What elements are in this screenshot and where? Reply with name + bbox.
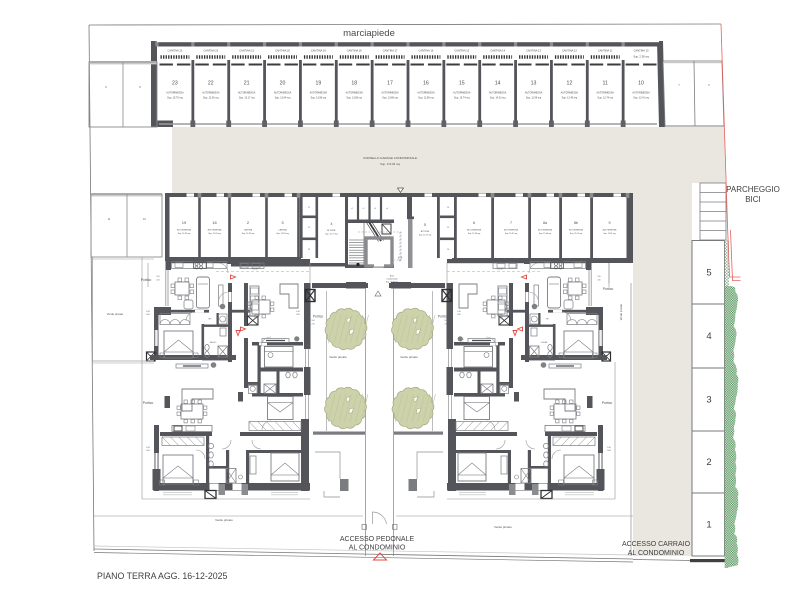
- svg-text:Sup. 15.06 mq: Sup. 15.06 mq: [539, 233, 551, 235]
- svg-text:BAGNO: BAGNO: [210, 341, 217, 344]
- svg-text:Verde privato: Verde privato: [400, 355, 418, 359]
- svg-text:AUTORIMESSA: AUTORIMESSA: [417, 92, 435, 95]
- svg-text:23: 23: [172, 81, 178, 87]
- svg-text:Portico: Portico: [143, 401, 154, 405]
- svg-text:14: 14: [495, 81, 501, 87]
- svg-text:AUTORIMESSA: AUTORIMESSA: [346, 92, 364, 95]
- svg-text:Portico: Portico: [313, 315, 324, 319]
- svg-text:RIP.: RIP.: [208, 319, 212, 321]
- svg-text:AUTORIMESSA: AUTORIMESSA: [525, 92, 543, 95]
- svg-text:Sup. 11.05 mq: Sup. 11.05 mq: [570, 233, 582, 235]
- svg-text:Verde privato: Verde privato: [215, 518, 233, 522]
- svg-text:Portico: Portico: [141, 278, 152, 282]
- svg-text:AUTORIMESSA: AUTORIMESSA: [208, 229, 222, 232]
- svg-text:Sup. 12.40 mq: Sup. 12.40 mq: [562, 97, 578, 100]
- svg-text:AUTORIMESSA: AUTORIMESSA: [504, 229, 518, 232]
- svg-text:CANTINA: CANTINA: [244, 229, 253, 232]
- svg-text:AUTORIMESSA: AUTORIMESSA: [597, 92, 615, 95]
- svg-text:18: 18: [351, 81, 357, 87]
- svg-text:CANTINA 21: CANTINA 21: [239, 49, 254, 53]
- svg-text:4: 4: [331, 222, 333, 226]
- svg-text:Atrio: Atrio: [390, 275, 394, 278]
- svg-text:Sup. 15.77 mq: Sup. 15.77 mq: [419, 235, 431, 237]
- svg-text:Sup. 12.86 mq: Sup. 12.86 mq: [418, 97, 434, 100]
- svg-text:PIANO TERRA AGG. 16-12-2025: PIANO TERRA AGG. 16-12-2025: [97, 571, 227, 581]
- svg-text:AUTORIMESSA: AUTORIMESSA: [569, 229, 583, 232]
- svg-text:CANTINA 10: CANTINA 10: [634, 49, 649, 53]
- svg-text:Sup. 13.86 mq: Sup. 13.86 mq: [311, 97, 327, 100]
- svg-text:2: 2: [706, 457, 711, 468]
- svg-text:19: 19: [182, 220, 187, 225]
- svg-text:c3: c3: [374, 208, 376, 210]
- svg-text:C1: C1: [308, 207, 310, 209]
- svg-text:CORSELLO GARAGE CONDOMINIALE: CORSELLO GARAGE CONDOMINIALE: [363, 156, 417, 160]
- svg-text:CANTINA 14: CANTINA 14: [490, 49, 505, 53]
- svg-text:AUTORIMESSA: AUTORIMESSA: [274, 92, 292, 95]
- svg-text:5: 5: [706, 267, 711, 278]
- svg-text:marciapiede: marciapiede: [343, 28, 395, 39]
- svg-text:CANTINA 23: CANTINA 23: [167, 49, 182, 53]
- svg-text:22: 22: [208, 81, 214, 87]
- svg-text:AL CONDOMINIO: AL CONDOMINIO: [349, 545, 406, 552]
- svg-text:Sup. 14.93 mq: Sup. 14.93 mq: [178, 233, 190, 235]
- svg-text:AUTORIMESSA: AUTORIMESSA: [310, 92, 328, 95]
- svg-text:AUTORIMESSA: AUTORIMESSA: [467, 229, 481, 232]
- svg-text:ACCESSO PEDONALE: ACCESSO PEDONALE: [340, 536, 415, 543]
- svg-text:Sup. 172.63 mq: Sup. 172.63 mq: [380, 162, 400, 166]
- svg-text:BAGNO: BAGNO: [540, 341, 547, 344]
- svg-text:CANTINA: CANTINA: [278, 229, 287, 232]
- svg-text:PARCHEGGIO: PARCHEGGIO: [726, 185, 780, 194]
- svg-text:8b: 8b: [574, 221, 578, 225]
- svg-text:Sup. 12.06 mq: Sup. 12.06 mq: [203, 97, 219, 100]
- svg-text:AUTORIMESSA: AUTORIMESSA: [238, 92, 256, 95]
- svg-text:CANTINA 18: CANTINA 18: [347, 49, 362, 53]
- svg-text:4: 4: [706, 331, 711, 342]
- svg-text:C2: C2: [308, 227, 310, 229]
- svg-text:15: 15: [459, 81, 465, 87]
- svg-text:C4: C4: [447, 207, 449, 209]
- svg-text:AUTORIMESSA: AUTORIMESSA: [603, 229, 617, 232]
- svg-text:Sup. 15.74 mq: Sup. 15.74 mq: [454, 97, 470, 100]
- svg-text:AUTORIMESSA: AUTORIMESSA: [538, 229, 552, 232]
- svg-text:16: 16: [212, 220, 217, 225]
- svg-text:Sup. 15.75 mq: Sup. 15.75 mq: [167, 97, 183, 100]
- svg-text:AUTORIMESSA: AUTORIMESSA: [453, 92, 471, 95]
- svg-text:Verde privato: Verde privato: [494, 525, 512, 529]
- svg-text:C6: C6: [447, 249, 449, 251]
- svg-text:52.58: 52.58: [497, 269, 503, 271]
- svg-text:Sup. 14.33 mq: Sup. 14.33 mq: [490, 97, 506, 100]
- svg-text:Sup. 12.41 mq: Sup. 12.41 mq: [633, 97, 649, 100]
- svg-text:Sup. 14.67 mq: Sup. 14.67 mq: [505, 233, 517, 235]
- svg-text:BICI: BICI: [745, 195, 761, 204]
- svg-text:CANTINA 17: CANTINA 17: [383, 49, 398, 53]
- svg-text:AL CONDOMINIO: AL CONDOMINIO: [628, 550, 685, 557]
- svg-text:Sup. 11.99 mq: Sup. 11.99 mq: [526, 97, 542, 100]
- svg-text:8a: 8a: [543, 221, 547, 225]
- svg-text:Verde privato: Verde privato: [329, 355, 347, 359]
- svg-text:AUTORIMESSA: AUTORIMESSA: [632, 92, 650, 95]
- svg-text:12: 12: [566, 81, 572, 87]
- svg-text:CANTINA 20: CANTINA 20: [275, 49, 290, 53]
- svg-text:Sup. 13.64 mq: Sup. 13.64 mq: [275, 97, 291, 100]
- svg-text:AUTORIMESSA: AUTORIMESSA: [381, 92, 399, 95]
- svg-text:5: 5: [424, 223, 426, 227]
- svg-text:CANTINA 11: CANTINA 11: [598, 49, 613, 53]
- svg-text:CANTINA 12: CANTINA 12: [562, 49, 577, 53]
- svg-text:20: 20: [280, 81, 286, 87]
- svg-text:9: 9: [609, 221, 611, 225]
- svg-text:C5: C5: [447, 227, 449, 229]
- svg-text:C3: C3: [308, 249, 310, 251]
- svg-text:11: 11: [603, 81, 608, 87]
- svg-text:c2: c2: [363, 208, 365, 210]
- svg-text:7: 7: [510, 221, 512, 225]
- svg-text:1: 1: [706, 520, 711, 531]
- svg-text:10: 10: [638, 81, 644, 87]
- svg-text:ATTIVITA': ATTIVITA': [327, 229, 336, 232]
- svg-text:condominiale: condominiale: [386, 279, 397, 281]
- svg-text:ACCESSO CARRAIO: ACCESSO CARRAIO: [622, 541, 691, 548]
- svg-text:Sup. 2.38 mq: Sup. 2.38 mq: [633, 55, 649, 59]
- svg-text:c1: c1: [351, 208, 353, 210]
- svg-text:AUTORIMESSA: AUTORIMESSA: [561, 92, 579, 95]
- svg-text:AUTORIMESSA: AUTORIMESSA: [489, 92, 507, 95]
- svg-text:Sup. 15.77 mq: Sup. 15.77 mq: [325, 234, 337, 236]
- svg-text:CANTINA 19: CANTINA 19: [311, 49, 326, 53]
- svg-text:13: 13: [531, 81, 537, 87]
- svg-text:Sup. 22.64 mq: Sup. 22.64 mq: [386, 282, 398, 284]
- svg-text:Sup. 15.26 mq: Sup. 15.26 mq: [208, 233, 220, 235]
- svg-text:c4: c4: [386, 208, 388, 210]
- svg-text:Sup. 13.17 mq: Sup. 13.17 mq: [239, 97, 255, 100]
- svg-text:Verde privato: Verde privato: [107, 312, 124, 316]
- svg-text:CANTINA 13: CANTINA 13: [526, 49, 541, 53]
- svg-text:Portico: Portico: [602, 401, 613, 405]
- svg-text:21: 21: [244, 81, 250, 87]
- svg-text:Sup. 11.41 mq: Sup. 11.41 mq: [603, 233, 615, 235]
- svg-text:Sup. 13.86 mq: Sup. 13.86 mq: [346, 97, 362, 100]
- svg-text:Verde privato: Verde privato: [619, 303, 623, 320]
- svg-text:17: 17: [387, 81, 393, 87]
- svg-text:AUTORIMESSA: AUTORIMESSA: [177, 229, 191, 232]
- svg-text:Portico: Portico: [603, 287, 614, 291]
- svg-text:RIP.: RIP.: [545, 319, 549, 321]
- svg-text:Sup. 13.86 mq: Sup. 13.86 mq: [382, 97, 398, 100]
- svg-text:AUTORIMESSA: AUTORIMESSA: [202, 92, 220, 95]
- svg-text:ATTIVITA': ATTIVITA': [421, 230, 430, 233]
- svg-text:CANTINA 16: CANTINA 16: [418, 49, 433, 53]
- svg-text:19: 19: [315, 81, 321, 87]
- svg-text:Sup. 12.74 mq: Sup. 12.74 mq: [597, 97, 613, 100]
- svg-text:Sup. 14.95 mq: Sup. 14.95 mq: [242, 233, 254, 235]
- svg-text:6: 6: [473, 221, 475, 225]
- svg-text:3: 3: [706, 395, 711, 406]
- svg-text:Sup. 15.09 mq: Sup. 15.09 mq: [468, 233, 480, 235]
- svg-text:16: 16: [423, 81, 429, 87]
- svg-text:CANTINA 22: CANTINA 22: [203, 49, 218, 53]
- svg-text:52.58: 52.58: [252, 269, 258, 271]
- svg-text:Sup. 14.99 mq: Sup. 14.99 mq: [276, 233, 288, 235]
- svg-text:Portico: Portico: [438, 315, 449, 319]
- svg-text:AUTORIMESSA: AUTORIMESSA: [166, 92, 184, 95]
- svg-text:CANTINA 15: CANTINA 15: [454, 49, 469, 53]
